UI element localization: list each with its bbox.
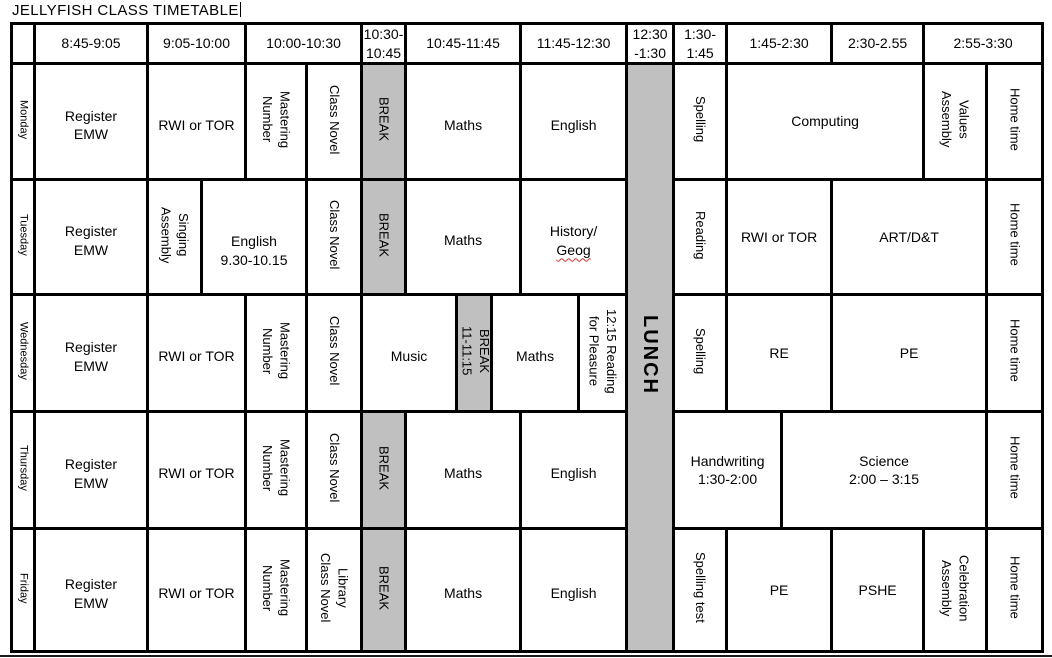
header-slot-1230: 12:30 -1:30 bbox=[627, 24, 674, 64]
page-bottom-edge bbox=[0, 655, 1052, 657]
friday-break-cell: BREAK bbox=[362, 529, 406, 652]
wednesday-reading-for-pleasure-cell: 12:15 Reading for Pleasure bbox=[579, 295, 627, 412]
monday-mastering-number-cell: Mastering Number bbox=[246, 64, 307, 180]
cell-label: Maths bbox=[444, 457, 482, 482]
friday-maths-cell: Maths bbox=[406, 529, 521, 652]
cell-label: Maths bbox=[516, 340, 554, 365]
cell-label: English bbox=[551, 109, 597, 134]
thursday-row: Thursday Register EMW RWI or TOR Masteri… bbox=[12, 412, 1043, 529]
header-slot-label: 10:30- 10:45 bbox=[364, 26, 404, 60]
header-slot-905: 9:05-10:00 bbox=[148, 24, 246, 64]
cell-label: Mastering Number bbox=[258, 91, 293, 148]
header-row: 8:45-9:05 9:05-10:00 10:00-10:30 10:30- … bbox=[12, 24, 1043, 64]
monday-day-label: Monday bbox=[16, 100, 31, 139]
cell-label: Music bbox=[391, 340, 428, 365]
friday-pe-cell: PE bbox=[727, 529, 832, 652]
cell-label: Values Assembly bbox=[938, 91, 973, 147]
cell-label: History/Geog bbox=[550, 215, 597, 258]
cell-label: Mastering Number bbox=[258, 559, 293, 616]
header-slot-label: 2:55-3:30 bbox=[954, 35, 1013, 51]
cell-label: Handwriting 1:30-2:00 bbox=[691, 452, 765, 488]
wednesday-home-time-cell: Home time bbox=[987, 295, 1043, 412]
cell-label: PE bbox=[770, 581, 789, 599]
cell-label: Maths bbox=[444, 109, 482, 134]
header-slot-1045: 10:45-11:45 bbox=[406, 24, 521, 64]
thursday-break-cell: BREAK bbox=[362, 412, 406, 529]
tuesday-register-cell: Register EMW bbox=[35, 180, 148, 295]
cell-label: Home time bbox=[1006, 88, 1024, 151]
cell-label: PE bbox=[900, 344, 919, 362]
cell-label: Mastering Number bbox=[258, 322, 293, 379]
friday-day-label-cell: Friday bbox=[12, 529, 35, 652]
cell-label: Home time bbox=[1006, 436, 1024, 499]
monday-home-time-cell: Home time bbox=[987, 64, 1043, 180]
monday-class-novel-cell: Class Novel bbox=[307, 64, 362, 180]
monday-row: Monday Register EMW RWI or TOR Mastering… bbox=[12, 64, 1043, 180]
monday-computing-cell: Computing bbox=[727, 64, 924, 180]
monday-rwi-cell: RWI or TOR bbox=[148, 64, 246, 180]
wednesday-pe-cell: PE bbox=[832, 295, 987, 412]
header-slot-1145: 11:45-12:30 bbox=[521, 24, 627, 64]
cell-label: English bbox=[551, 457, 597, 482]
thursday-home-time-cell: Home time bbox=[987, 412, 1043, 529]
cell-label: ART/D&T bbox=[879, 228, 939, 246]
cell-label: Register EMW bbox=[65, 215, 117, 258]
cell-label: Computing bbox=[791, 112, 859, 130]
monday-spelling-cell: Spelling bbox=[674, 64, 727, 180]
thursday-day-label: Thursday bbox=[16, 445, 31, 491]
wednesday-day-label-cell: Wednesday bbox=[12, 295, 35, 412]
header-slot-label: 11:45-12:30 bbox=[537, 35, 611, 51]
cell-label: Library Class Novel bbox=[316, 553, 351, 622]
history-text: History/ bbox=[550, 223, 597, 239]
header-slot-label: 10:00-10:30 bbox=[266, 35, 341, 51]
friday-day-label: Friday bbox=[16, 573, 31, 604]
cell-label: Register EMW bbox=[65, 448, 117, 491]
monday-values-assembly-cell: Values Assembly bbox=[924, 64, 987, 180]
cell-label: 12:15 Reading for Pleasure bbox=[585, 309, 620, 394]
cell-label: Home time bbox=[1006, 203, 1024, 266]
lunch-cell: LUNCH bbox=[627, 64, 674, 652]
cell-label: Celebration Assembly bbox=[938, 555, 973, 622]
friday-pshe-cell: PSHE bbox=[832, 529, 924, 652]
cell-label: PSHE bbox=[859, 581, 897, 599]
timetable: 8:45-9:05 9:05-10:00 10:00-10:30 10:30- … bbox=[10, 22, 1044, 653]
friday-rwi-cell: RWI or TOR bbox=[148, 529, 246, 652]
friday-row: Friday Register EMW RWI or TOR Mastering… bbox=[12, 529, 1043, 652]
wednesday-break-cell: BREAK 11-11:15 bbox=[457, 295, 492, 412]
header-slot-label: 9:05-10:00 bbox=[163, 35, 230, 51]
cell-label: BREAK bbox=[375, 566, 393, 610]
thursday-class-novel-cell: Class Novel bbox=[307, 412, 362, 529]
friday-spelling-test-cell: Spelling test bbox=[674, 529, 727, 652]
friday-mastering-number-cell: Mastering Number bbox=[246, 529, 307, 652]
cell-label: RWI or TOR bbox=[741, 228, 817, 246]
header-slot-label: 12:30 -1:30 bbox=[633, 26, 668, 60]
cell-label: Reading bbox=[691, 211, 709, 259]
thursday-maths-cell: Maths bbox=[406, 412, 521, 529]
cell-label: Register EMW bbox=[65, 568, 117, 611]
header-slot-label: 2:30-2.55 bbox=[848, 35, 907, 51]
wednesday-music-cell: Music bbox=[362, 295, 457, 412]
cell-label: Singing Assembly bbox=[157, 207, 192, 263]
header-slot-label: 1:30- 1:45 bbox=[684, 26, 716, 60]
wednesday-mastering-number-cell: Mastering Number bbox=[246, 295, 307, 412]
cell-label: Class Novel bbox=[325, 433, 343, 502]
tuesday-row: Tuesday Register EMW Singing Assembly En… bbox=[12, 180, 1043, 295]
monday-break-cell: BREAK bbox=[362, 64, 406, 180]
tuesday-home-time-cell: Home time bbox=[987, 180, 1043, 295]
cell-label: RWI or TOR bbox=[158, 340, 234, 365]
wednesday-register-cell: Register EMW bbox=[35, 295, 148, 412]
wednesday-re-cell: RE bbox=[727, 295, 832, 412]
wednesday-rwi-cell: RWI or TOR bbox=[148, 295, 246, 412]
friday-library-class-novel-cell: Library Class Novel bbox=[307, 529, 362, 652]
header-slot-230: 2:30-2.55 bbox=[832, 24, 924, 64]
monday-english-cell: English bbox=[521, 64, 627, 180]
cell-label: Mastering Number bbox=[258, 439, 293, 496]
tuesday-day-label-cell: Tuesday bbox=[12, 180, 35, 295]
cell-label: Register EMW bbox=[65, 100, 117, 143]
cell-label: Home time bbox=[1006, 556, 1024, 619]
lunch-label: LUNCH bbox=[640, 315, 660, 395]
cell-label: BREAK 11-11:15 bbox=[458, 326, 492, 375]
thursday-day-label-cell: Thursday bbox=[12, 412, 35, 529]
friday-celebration-assembly-cell: Celebration Assembly bbox=[924, 529, 987, 652]
cell-label: BREAK bbox=[375, 97, 393, 141]
cell-label: Home time bbox=[1006, 319, 1024, 382]
page-title[interactable]: JELLYFISH CLASS TIMETABLE bbox=[12, 2, 241, 19]
header-slot-255: 2:55-3:30 bbox=[924, 24, 1043, 64]
cell-label: RWI or TOR bbox=[158, 109, 234, 134]
tuesday-history-geog-cell: History/Geog bbox=[521, 180, 627, 295]
header-slot-845: 8:45-9:05 bbox=[35, 24, 148, 64]
header-slot-1030: 10:30- 10:45 bbox=[362, 24, 406, 64]
cell-label: RWI or TOR bbox=[158, 577, 234, 602]
tuesday-art-dt-cell: ART/D&T bbox=[832, 180, 987, 295]
geog-text-spellcheck: Geog bbox=[556, 242, 590, 258]
cell-label: BREAK bbox=[375, 446, 393, 490]
thursday-mastering-number-cell: Mastering Number bbox=[246, 412, 307, 529]
cell-label: Science 2:00 – 3:15 bbox=[849, 452, 919, 488]
wednesday-row: Wednesday Register EMW RWI or TOR Master… bbox=[12, 295, 1043, 412]
cell-label: Class Novel bbox=[325, 85, 343, 154]
tuesday-maths-cell: Maths bbox=[406, 180, 521, 295]
thursday-rwi-cell: RWI or TOR bbox=[148, 412, 246, 529]
tuesday-day-label: Tuesday bbox=[16, 214, 31, 256]
monday-maths-cell: Maths bbox=[406, 64, 521, 180]
thursday-handwriting-cell: Handwriting 1:30-2:00 bbox=[674, 412, 782, 529]
header-slot-label: 1:45-2:30 bbox=[749, 35, 808, 51]
wednesday-class-novel-cell: Class Novel bbox=[307, 295, 362, 412]
cell-label: Maths bbox=[444, 577, 482, 602]
wednesday-spelling-cell: Spelling bbox=[674, 295, 727, 412]
cell-label: RE bbox=[769, 344, 788, 362]
thursday-register-cell: Register EMW bbox=[35, 412, 148, 529]
header-slot-1000: 10:00-10:30 bbox=[246, 24, 362, 64]
tuesday-english-cell: English 9.30-10.15 bbox=[202, 180, 307, 295]
cell-label: Maths bbox=[444, 224, 482, 249]
friday-home-time-cell: Home time bbox=[987, 529, 1043, 652]
cell-label: Spelling bbox=[691, 328, 709, 374]
tuesday-class-novel-cell: Class Novel bbox=[307, 180, 362, 295]
cell-label: English 9.30-10.15 bbox=[221, 205, 288, 268]
cell-label: Spelling test bbox=[691, 552, 709, 623]
cell-label: Register EMW bbox=[65, 331, 117, 374]
cell-label: BREAK bbox=[375, 213, 393, 257]
monday-day-label-cell: Monday bbox=[12, 64, 35, 180]
cell-label: Class Novel bbox=[325, 316, 343, 385]
header-slot-label: 8:45-9:05 bbox=[61, 35, 120, 51]
cell-label: Spelling bbox=[691, 96, 709, 142]
thursday-english-cell: English bbox=[521, 412, 627, 529]
wednesday-day-label: Wednesday bbox=[16, 322, 31, 380]
tuesday-rwi-pm-cell: RWI or TOR bbox=[727, 180, 832, 295]
cell-label: English bbox=[551, 577, 597, 602]
tuesday-break-cell: BREAK bbox=[362, 180, 406, 295]
page-title-text: JELLYFISH CLASS TIMETABLE bbox=[12, 2, 239, 19]
header-day-corner bbox=[12, 24, 35, 64]
monday-register-cell: Register EMW bbox=[35, 64, 148, 180]
cell-label: Class Novel bbox=[325, 200, 343, 269]
tuesday-reading-cell: Reading bbox=[674, 180, 727, 295]
header-slot-label: 10:45-11:45 bbox=[426, 35, 500, 51]
friday-register-cell: Register EMW bbox=[35, 529, 148, 652]
tuesday-singing-assembly-cell: Singing Assembly bbox=[148, 180, 202, 295]
header-slot-145: 1:45-2:30 bbox=[727, 24, 832, 64]
friday-english-cell: English bbox=[521, 529, 627, 652]
thursday-science-cell: Science 2:00 – 3:15 bbox=[782, 412, 987, 529]
text-cursor bbox=[240, 2, 241, 17]
cell-label: RWI or TOR bbox=[158, 457, 234, 482]
header-slot-130: 1:30- 1:45 bbox=[674, 24, 727, 64]
wednesday-maths-cell: Maths bbox=[492, 295, 579, 412]
